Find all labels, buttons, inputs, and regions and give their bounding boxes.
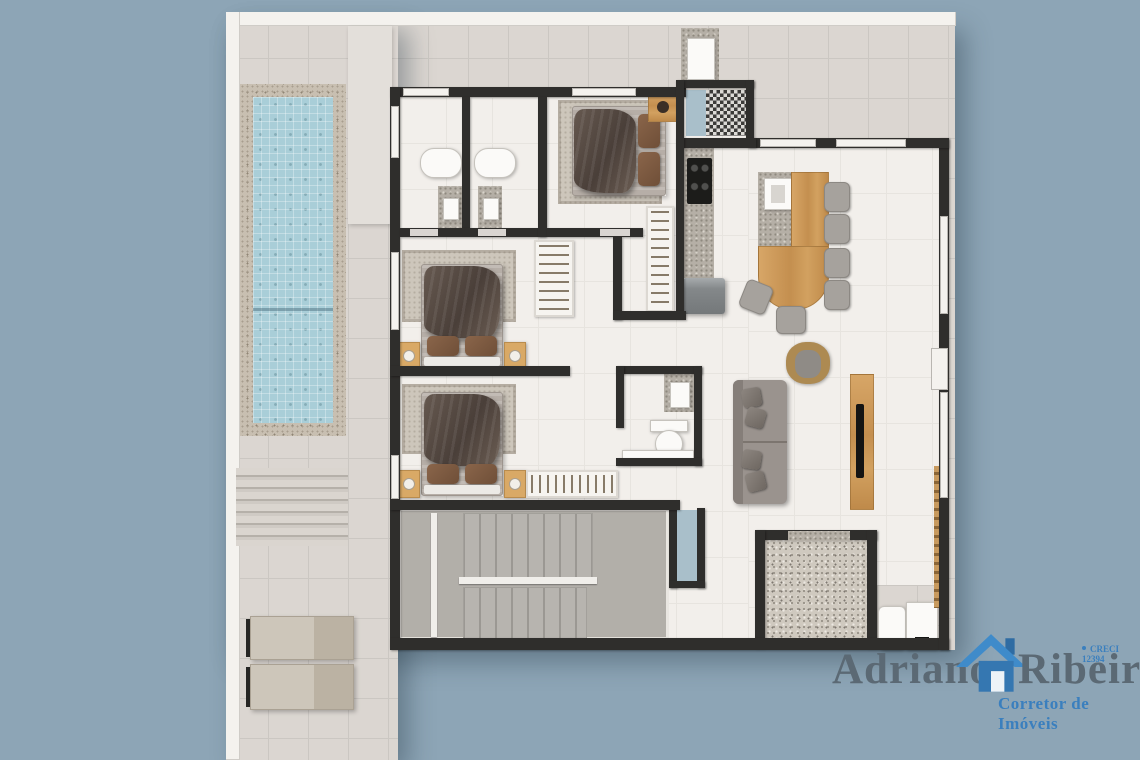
stair-flight-lower [463, 587, 587, 639]
double-bed [421, 392, 503, 496]
service-floor [686, 90, 706, 136]
pillow [638, 152, 660, 186]
shaft-wall [669, 581, 705, 588]
wall [676, 80, 684, 318]
shaft-wall [669, 508, 677, 588]
staircase-room [398, 508, 669, 640]
blanket [424, 394, 500, 466]
sun-lounger [250, 664, 354, 710]
armchair [786, 338, 830, 384]
refrigerator [683, 278, 725, 314]
stair-flight-upper [463, 513, 593, 579]
wall [694, 366, 702, 466]
wall [746, 80, 754, 146]
clothes-rack [526, 470, 618, 498]
watermark-tagline: Corretor de Imóveis [998, 694, 1140, 734]
nightstand [398, 470, 420, 498]
house-icon [954, 632, 1028, 700]
sofa [733, 380, 787, 504]
window [391, 252, 399, 330]
cooktop [687, 158, 712, 204]
dining-chair [824, 280, 850, 310]
bath-mat [483, 198, 499, 220]
wall [390, 366, 570, 376]
pillow [427, 464, 459, 484]
bath-mat [443, 198, 459, 220]
double-bed [421, 264, 503, 368]
pillar [931, 348, 948, 390]
closet [534, 240, 574, 317]
pillow [465, 336, 497, 356]
sofa-pillow [740, 386, 762, 408]
lavabo-sink [670, 382, 690, 408]
window [836, 139, 906, 147]
sofa-seam [743, 441, 787, 443]
wall [616, 458, 702, 466]
dresser-decor [657, 101, 669, 113]
window [940, 392, 948, 498]
window [760, 139, 816, 147]
patio-threshold [788, 531, 850, 541]
sink-basin [771, 185, 785, 203]
hanging-clothes [539, 245, 569, 312]
window [403, 88, 449, 96]
lamp [403, 478, 415, 490]
dining-chair [824, 248, 850, 278]
pool-water [253, 97, 333, 423]
entry-patio-floor [765, 540, 867, 640]
outer-wall-top [226, 12, 956, 26]
window [572, 88, 636, 96]
watermark-license: CRECI 12394 [1082, 644, 1140, 664]
pillow [465, 464, 497, 484]
door [410, 229, 438, 236]
stair-railing [431, 513, 437, 637]
window [391, 106, 399, 158]
outer-wall-left [226, 12, 240, 760]
watermark-logo: Adriano Ribeiro CRECI 12394 Corretor de … [820, 628, 1140, 738]
lounger-frame [246, 667, 250, 707]
hanging-clothes [651, 211, 669, 307]
sun-lounger [250, 616, 354, 660]
laundry-sink [687, 38, 715, 80]
stair-railing [459, 577, 597, 584]
wall [613, 237, 622, 320]
island-sink [764, 178, 792, 210]
nightstand [504, 470, 526, 498]
wall [676, 138, 756, 148]
dining-chair [824, 182, 850, 212]
window [391, 455, 399, 499]
blanket [424, 266, 500, 338]
master-closet [646, 206, 674, 312]
wall [616, 366, 702, 374]
wall [616, 366, 624, 428]
bathroom-sink [474, 148, 516, 178]
armchair-cushion [795, 350, 821, 378]
lounger-frame [246, 619, 250, 657]
door [478, 229, 506, 236]
lamp [509, 350, 521, 362]
sofa-pillow [744, 406, 768, 430]
pillow [427, 336, 459, 356]
bathroom-sink [420, 148, 462, 178]
hanging-clothes [531, 475, 613, 493]
drying-grate [706, 90, 746, 136]
wall [390, 500, 680, 510]
light-shaft [677, 510, 697, 581]
dining-chair [776, 306, 806, 334]
window [940, 216, 948, 314]
wall [613, 311, 686, 320]
sofa-pillow [744, 470, 767, 493]
tv [856, 404, 864, 478]
sofa-pillow [741, 449, 762, 470]
door [600, 229, 630, 236]
blanket [574, 109, 636, 193]
bed-sheet [424, 357, 500, 366]
lamp [403, 350, 415, 362]
wall [676, 80, 754, 88]
deck-steps [236, 468, 348, 546]
dining-chair [824, 214, 850, 244]
side-walkway [348, 26, 392, 224]
floor-plan-render: Adriano Ribeiro CRECI 12394 Corretor de … [0, 0, 1140, 760]
lamp [509, 478, 521, 490]
shaft-wall [697, 508, 705, 588]
pool-step-line [253, 308, 333, 311]
wall [538, 97, 547, 237]
patio-wall [755, 530, 765, 648]
wall [462, 97, 470, 233]
bed-sheet [424, 485, 500, 494]
